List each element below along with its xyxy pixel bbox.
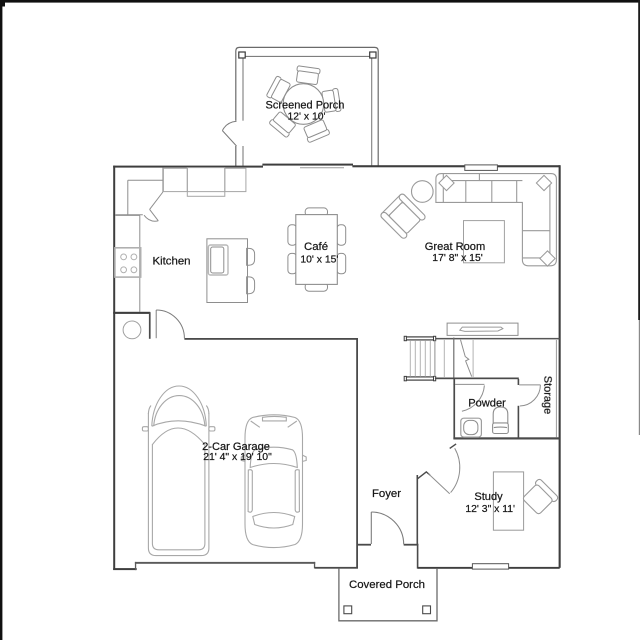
svg-text:Powder: Powder	[468, 398, 506, 410]
svg-text:Screened Porch: Screened Porch	[266, 99, 345, 111]
svg-text:10' x 15': 10' x 15'	[300, 254, 338, 265]
svg-text:Study: Study	[474, 491, 503, 503]
svg-text:12' 3" x 11': 12' 3" x 11'	[465, 504, 515, 515]
svg-text:Storage: Storage	[541, 376, 553, 415]
svg-text:Foyer: Foyer	[372, 488, 401, 500]
svg-text:Covered Porch: Covered Porch	[349, 579, 425, 591]
svg-text:21' 4" x 19' 10": 21' 4" x 19' 10"	[203, 452, 272, 463]
svg-text:Café: Café	[304, 241, 328, 253]
svg-text:12' x 10': 12' x 10'	[287, 111, 325, 122]
svg-text:Great Room: Great Room	[425, 241, 485, 253]
svg-text:Kitchen: Kitchen	[153, 256, 191, 268]
svg-text:17' 8" x 15': 17' 8" x 15'	[432, 253, 482, 264]
